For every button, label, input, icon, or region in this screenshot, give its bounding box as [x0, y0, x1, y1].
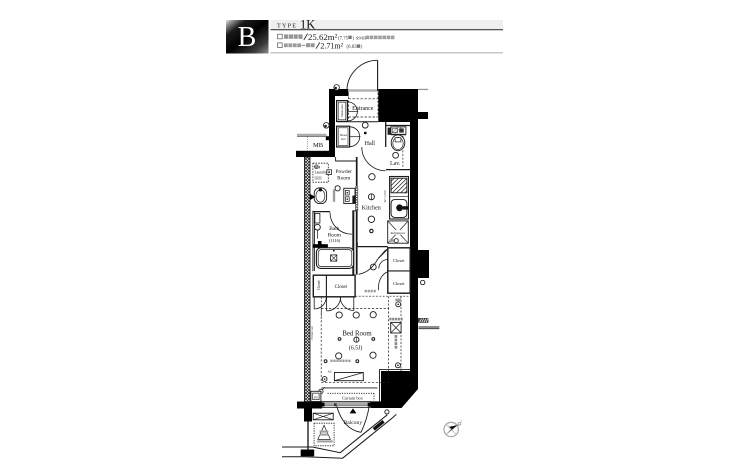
- svg-text:Closet: Closet: [335, 285, 348, 290]
- svg-text:box: box: [341, 137, 346, 141]
- svg-text:Laundry: Laundry: [315, 170, 327, 174]
- svg-text:(1116): (1116): [329, 238, 341, 243]
- svg-text:PS: PS: [314, 396, 318, 400]
- svg-text:Bed Room: Bed Room: [342, 330, 372, 337]
- svg-text:W=1,350: W=1,350: [383, 190, 388, 202]
- svg-text:Refrigerator: Refrigerator: [391, 231, 406, 235]
- svg-text:TYPE: TYPE: [277, 23, 297, 30]
- svg-text:※MB: ※MB: [356, 35, 367, 40]
- svg-text:Entrance: Entrance: [352, 106, 374, 112]
- svg-text:): ): [361, 45, 363, 50]
- svg-text:(6.5J): (6.5J): [349, 344, 362, 351]
- svg-text:2.71m²: 2.71m²: [320, 42, 343, 51]
- svg-text:Lav.: Lav.: [390, 161, 401, 167]
- svg-text:MB: MB: [313, 142, 324, 149]
- svg-text:Powder: Powder: [335, 169, 352, 175]
- svg-text:): ): [352, 36, 354, 41]
- svg-text:Closet: Closet: [317, 280, 321, 291]
- svg-text:AC: AC: [328, 370, 332, 374]
- svg-text:Curtain box: Curtain box: [342, 396, 364, 401]
- svg-text:B: B: [238, 22, 257, 53]
- svg-text:Room: Room: [337, 176, 351, 182]
- svg-text:Hall: Hall: [365, 141, 376, 147]
- svg-text:Closet: Closet: [393, 281, 405, 286]
- svg-text:Bath: Bath: [329, 226, 339, 232]
- svg-text:(0.83: (0.83: [347, 45, 358, 50]
- svg-text:1K: 1K: [300, 17, 315, 31]
- svg-text:Closet: Closet: [393, 258, 405, 263]
- svg-text:Picture rail: Picture rail: [310, 326, 314, 339]
- svg-text:Shoes box: Shoes box: [340, 104, 344, 117]
- svg-text:Balcony: Balcony: [343, 420, 362, 426]
- svg-text:Kitchen: Kitchen: [362, 206, 381, 212]
